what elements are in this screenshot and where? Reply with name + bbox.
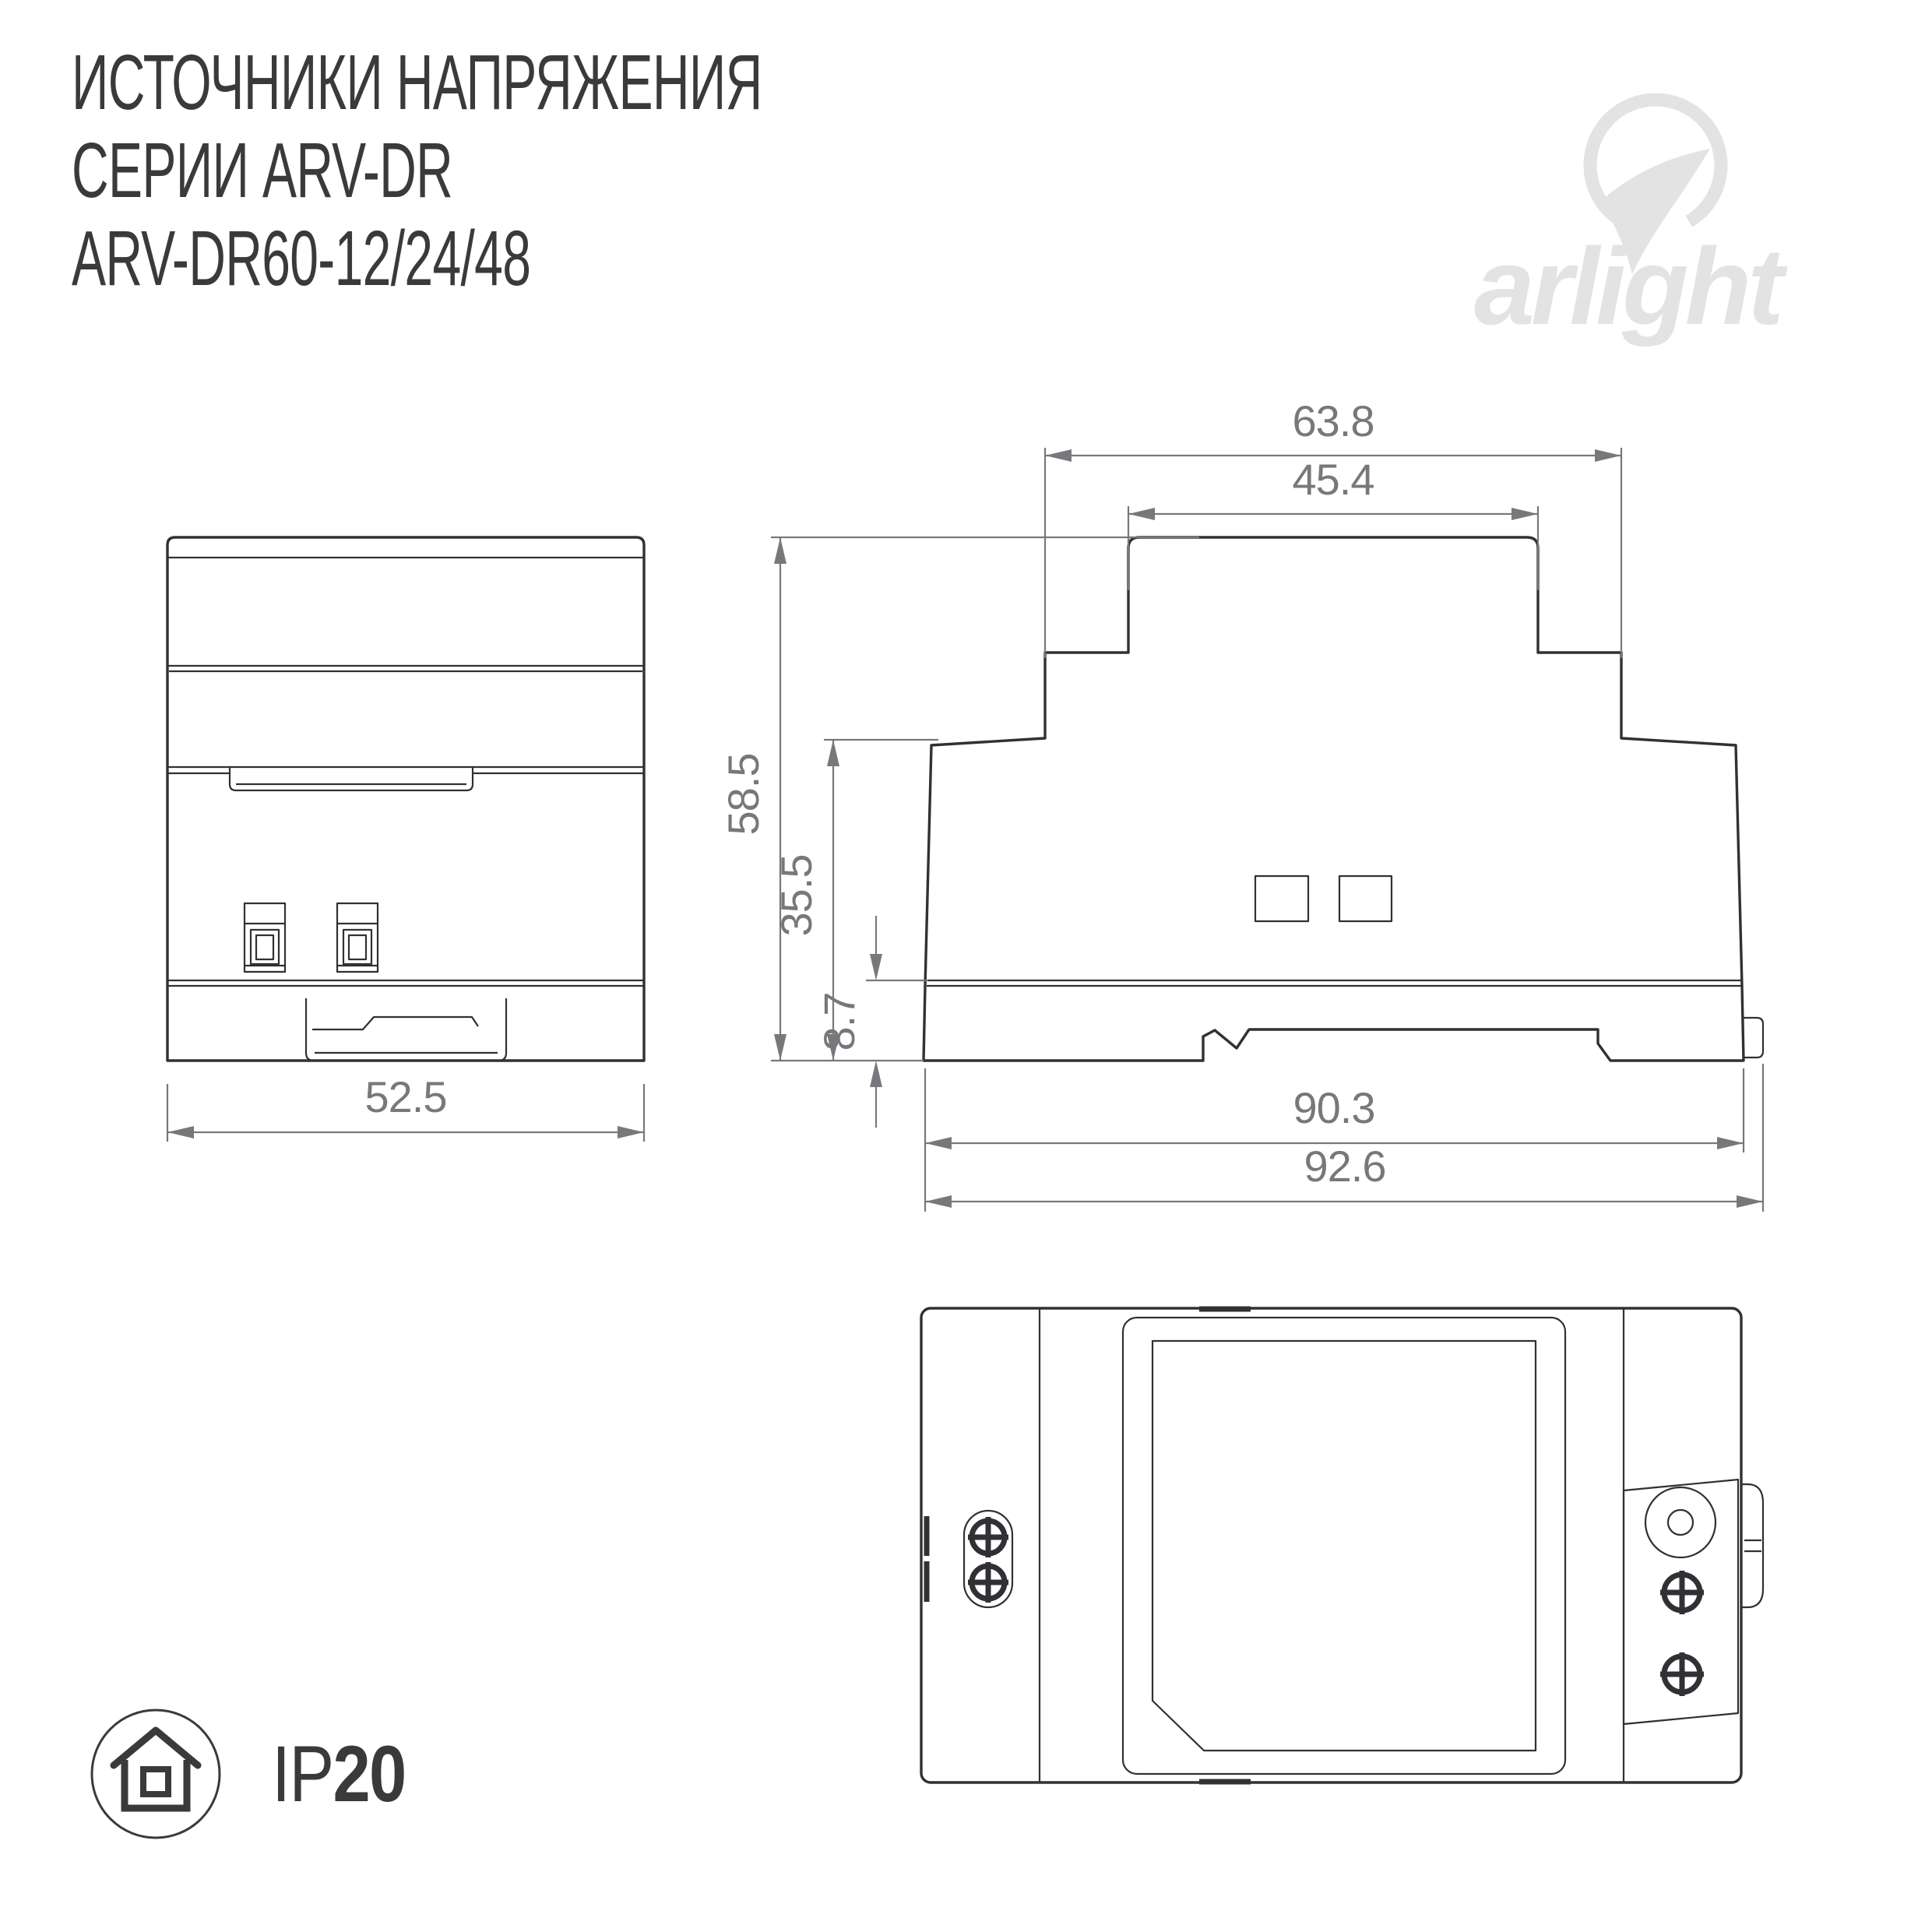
- dim-arrows: [870, 954, 882, 1087]
- screw-cross: [1660, 1571, 1704, 1614]
- label-panel: [1153, 1341, 1536, 1751]
- front-terminal-block-1: [245, 903, 285, 972]
- output-panel: [1624, 1480, 1738, 1724]
- ip-rating: IP20: [272, 1730, 406, 1818]
- screw-cross: [1660, 1652, 1704, 1696]
- house-icon: [114, 1730, 198, 1808]
- top-view: [921, 1308, 1763, 1782]
- screw-terminal-icon: [1660, 1652, 1704, 1696]
- dim-label-8-7: 8.7: [815, 993, 864, 1051]
- front-din-clip-detail: [312, 1017, 498, 1053]
- label-frame: [1123, 1318, 1565, 1774]
- screw-cross: [968, 1517, 1008, 1557]
- screw-terminal-icon: [968, 1562, 1008, 1603]
- dim-front-width: 52.5: [167, 1072, 644, 1142]
- front-terminal-block-2: [337, 903, 378, 972]
- dim-ext-lines: [771, 537, 1199, 1061]
- house-window: [143, 1769, 168, 1794]
- dim-ext-lines: [1128, 506, 1538, 590]
- logo-wordmark: arlight: [1474, 225, 1788, 347]
- input-screw-terminals: [964, 1511, 1012, 1607]
- label-area: [1123, 1318, 1565, 1774]
- screw-cross: [968, 1562, 1008, 1603]
- dim-label-90-3: 90.3: [1293, 1083, 1375, 1132]
- arlight-logo: arlight: [1474, 100, 1788, 347]
- dim-label-52-5: 52.5: [365, 1072, 447, 1121]
- page: ИСТОЧНИКИ НАПРЯЖЕНИЯ СЕРИИ ARV-DR ARV-DR…: [0, 0, 1932, 1932]
- ip-rating-text: IP20: [272, 1730, 406, 1818]
- front-base-seam: [167, 980, 644, 986]
- dim-step-width: 63.8: [1045, 396, 1621, 658]
- clip-outline: [1741, 1484, 1763, 1607]
- side-view: 63.8 45.4 58.5 35.5: [719, 396, 1763, 1212]
- terminal-inner2: [256, 935, 273, 959]
- top-edge-marks: [1199, 1309, 1251, 1782]
- front-outline: [167, 537, 644, 1061]
- dim-label-35-5: 35.5: [772, 855, 821, 937]
- top-din-clip: [1741, 1484, 1763, 1607]
- ip-value: 20: [333, 1730, 406, 1818]
- screw-terminal-icon: [968, 1517, 1008, 1557]
- adjust-pot-icon: [1645, 1487, 1716, 1557]
- dim-label-63-8: 63.8: [1293, 396, 1374, 445]
- side-clip-tab: [1744, 1018, 1763, 1057]
- terminal-inner2: [349, 935, 366, 959]
- dim-base-height: 8.7: [815, 916, 928, 1128]
- front-label-tab: [230, 767, 473, 790]
- dim-label-92-6: 92.6: [1304, 1142, 1386, 1191]
- front-view: 52.5: [167, 537, 644, 1142]
- dim-top-width: 45.4: [1128, 455, 1538, 590]
- ip-badge: IP20: [92, 1710, 406, 1838]
- side-base-seam: [927, 980, 1741, 986]
- adjust-pot-center: [1668, 1510, 1693, 1535]
- clip-detail: [1744, 1540, 1761, 1551]
- screw-terminal-icon: [1660, 1571, 1704, 1614]
- side-vent-square-1: [1255, 876, 1308, 921]
- front-mid-seam: [167, 666, 644, 671]
- dim-label-58-5: 58.5: [719, 754, 768, 836]
- ip-prefix: IP: [272, 1730, 333, 1818]
- side-vent-square-2: [1339, 876, 1392, 921]
- top-outline: [921, 1308, 1741, 1782]
- dimension-drawing: arlight: [0, 0, 1932, 1932]
- dim-label-45-4: 45.4: [1293, 455, 1374, 504]
- front-step-seam: [167, 767, 644, 773]
